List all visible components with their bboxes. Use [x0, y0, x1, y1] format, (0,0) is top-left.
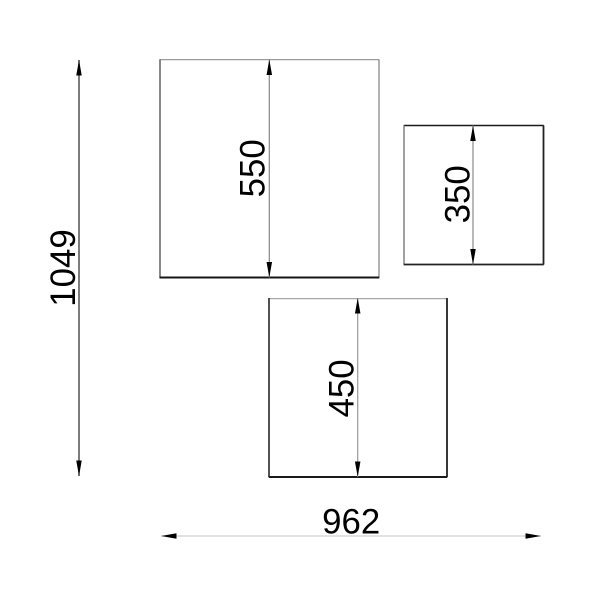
svg-text:962: 962	[322, 503, 380, 542]
svg-text:550: 550	[233, 139, 272, 197]
svg-text:450: 450	[323, 359, 362, 417]
svg-text:350: 350	[438, 165, 477, 223]
svg-text:1049: 1049	[44, 229, 83, 306]
